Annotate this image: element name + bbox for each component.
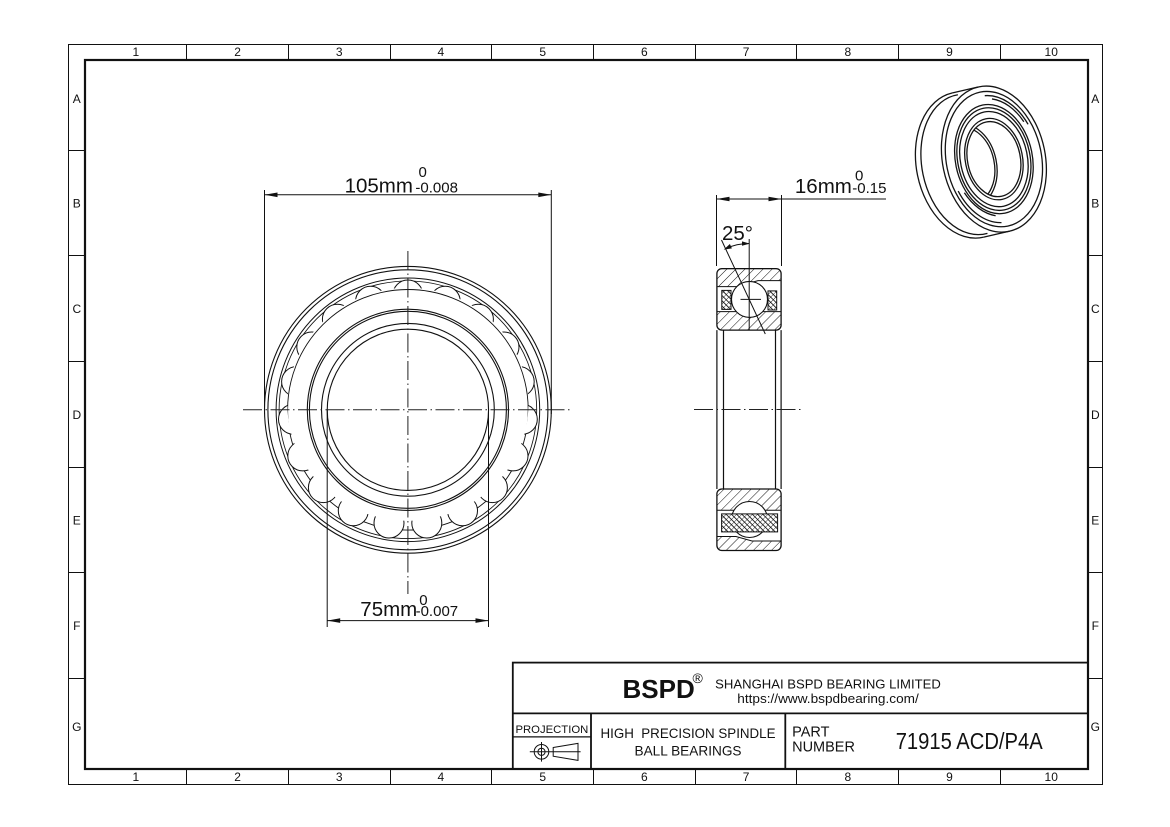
svg-text:8: 8 xyxy=(844,770,851,784)
svg-text:F: F xyxy=(1092,619,1099,633)
svg-text:6: 6 xyxy=(641,770,648,784)
svg-text:4: 4 xyxy=(438,770,445,784)
svg-text:5: 5 xyxy=(539,45,546,59)
svg-text:-0.15: -0.15 xyxy=(852,180,886,197)
svg-text:G: G xyxy=(72,720,81,734)
svg-text:B: B xyxy=(73,196,81,210)
svg-text:6: 6 xyxy=(641,45,648,59)
svg-text:7: 7 xyxy=(743,770,750,784)
svg-text:105mm: 105mm xyxy=(345,174,413,197)
svg-text:5: 5 xyxy=(539,770,546,784)
svg-text:7: 7 xyxy=(743,45,750,59)
svg-text:D: D xyxy=(1091,408,1100,422)
svg-text:3: 3 xyxy=(336,45,343,59)
svg-text:2: 2 xyxy=(234,45,241,59)
svg-text:4: 4 xyxy=(438,45,445,59)
svg-text:B: B xyxy=(1091,196,1099,210)
svg-text:PROJECTION: PROJECTION xyxy=(515,724,588,736)
svg-text:-0.007: -0.007 xyxy=(416,603,459,620)
svg-text:2: 2 xyxy=(234,770,241,784)
svg-text:-0.008: -0.008 xyxy=(415,179,458,196)
svg-text:25°: 25° xyxy=(722,222,753,245)
svg-text:HIGH PRECISION SPINDLE: HIGH PRECISION SPINDLE xyxy=(601,726,776,741)
svg-text:NUMBER: NUMBER xyxy=(792,740,855,756)
svg-text:3: 3 xyxy=(336,770,343,784)
svg-text:A: A xyxy=(73,92,81,106)
svg-text:®: ® xyxy=(693,670,704,686)
svg-text:PART: PART xyxy=(792,725,829,741)
svg-text:71915 ACD/P4A: 71915 ACD/P4A xyxy=(896,728,1043,754)
svg-text:75mm: 75mm xyxy=(360,598,417,621)
svg-text:G: G xyxy=(1091,720,1100,734)
svg-text:SHANGHAI BSPD BEARING LIMITED: SHANGHAI BSPD BEARING LIMITED xyxy=(715,676,941,691)
svg-text:F: F xyxy=(73,619,80,633)
svg-text:10: 10 xyxy=(1045,770,1059,784)
svg-text:16mm: 16mm xyxy=(795,175,852,198)
svg-text:A: A xyxy=(1091,92,1099,106)
svg-text:E: E xyxy=(1091,513,1099,527)
svg-text:9: 9 xyxy=(946,45,953,59)
svg-text:1: 1 xyxy=(132,45,139,59)
svg-text:C: C xyxy=(1091,302,1100,316)
svg-text:D: D xyxy=(72,408,81,422)
svg-text:BSPD: BSPD xyxy=(623,674,695,704)
svg-text:E: E xyxy=(73,513,81,527)
svg-text:https://www.bspdbearing.com/: https://www.bspdbearing.com/ xyxy=(737,691,919,706)
svg-text:9: 9 xyxy=(946,770,953,784)
svg-text:8: 8 xyxy=(844,45,851,59)
svg-text:C: C xyxy=(72,302,81,316)
svg-text:10: 10 xyxy=(1045,45,1059,59)
svg-text:1: 1 xyxy=(132,770,139,784)
svg-text:BALL BEARINGS: BALL BEARINGS xyxy=(635,743,742,758)
